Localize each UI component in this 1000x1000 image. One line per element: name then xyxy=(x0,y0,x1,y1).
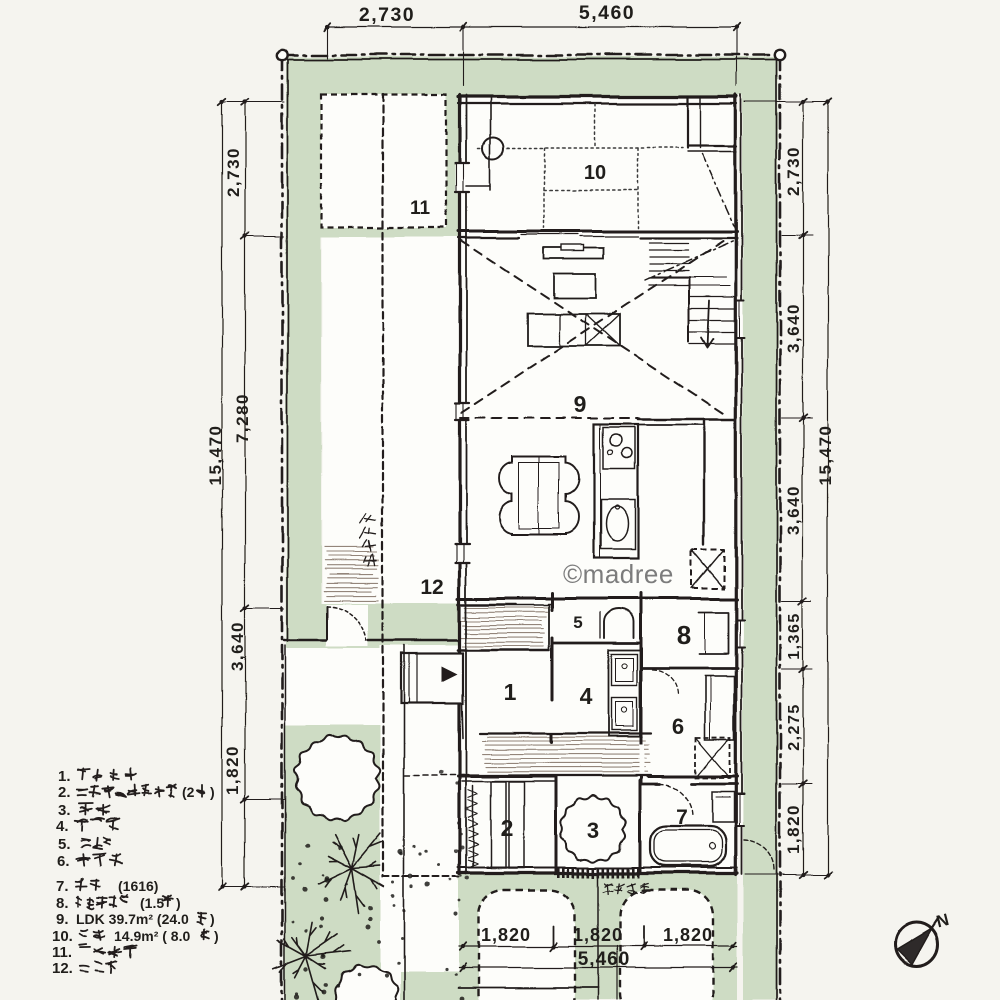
svg-text:8.: 8. xyxy=(56,895,69,912)
svg-text:6: 6 xyxy=(672,714,684,739)
svg-text:©madree: ©madree xyxy=(563,559,674,589)
svg-text:7,280: 7,280 xyxy=(233,393,252,443)
svg-text:15,470: 15,470 xyxy=(816,425,835,486)
svg-text:1,820: 1,820 xyxy=(223,745,242,795)
svg-text:1,820: 1,820 xyxy=(784,804,803,854)
svg-text:2,275: 2,275 xyxy=(786,703,803,751)
svg-text:4.: 4. xyxy=(56,818,69,835)
svg-text:10: 10 xyxy=(584,162,606,184)
svg-text:11.: 11. xyxy=(52,944,72,961)
svg-text:9.: 9. xyxy=(56,911,69,928)
svg-text:3,640: 3,640 xyxy=(784,303,803,353)
svg-text:): ) xyxy=(210,911,215,927)
svg-text:3,640: 3,640 xyxy=(784,485,803,535)
svg-text:2: 2 xyxy=(501,815,514,841)
svg-text:10.: 10. xyxy=(52,928,73,945)
svg-text:1,820: 1,820 xyxy=(573,925,623,945)
svg-text:11: 11 xyxy=(410,198,431,219)
svg-text:3.: 3. xyxy=(58,802,71,819)
svg-text:7: 7 xyxy=(676,806,688,829)
svg-text:): ) xyxy=(214,928,219,944)
svg-text:9: 9 xyxy=(574,391,587,417)
svg-text:5: 5 xyxy=(573,613,582,632)
svg-text:6.: 6. xyxy=(57,853,70,870)
svg-text:12: 12 xyxy=(420,576,443,599)
svg-text:4: 4 xyxy=(580,683,593,709)
svg-text:5,460: 5,460 xyxy=(579,2,635,24)
svg-text:2,730: 2,730 xyxy=(224,147,243,197)
svg-text:(2: (2 xyxy=(182,784,195,800)
svg-text:): ) xyxy=(210,784,215,800)
svg-text:1,365: 1,365 xyxy=(786,612,803,660)
svg-text:2,730: 2,730 xyxy=(359,4,415,26)
svg-text:15,470: 15,470 xyxy=(206,425,225,486)
svg-text:(1616): (1616) xyxy=(118,878,158,894)
svg-text:2,730: 2,730 xyxy=(784,146,803,196)
svg-text:1: 1 xyxy=(504,679,517,705)
svg-text:2.: 2. xyxy=(58,784,71,801)
svg-text:12.: 12. xyxy=(52,960,73,977)
svg-text:1,820: 1,820 xyxy=(481,925,531,945)
svg-text:7.: 7. xyxy=(56,878,69,895)
svg-text:8: 8 xyxy=(677,620,691,650)
svg-text:5,460: 5,460 xyxy=(578,949,631,970)
svg-text:1.: 1. xyxy=(58,768,71,785)
svg-text:1,820: 1,820 xyxy=(663,925,713,945)
svg-text:(1.5: (1.5 xyxy=(140,895,164,911)
svg-text:3: 3 xyxy=(587,818,599,843)
svg-text:LDK 39.7m² (24.0: LDK 39.7m² (24.0 xyxy=(76,911,189,927)
svg-text:): ) xyxy=(176,895,181,911)
svg-text:3,640: 3,640 xyxy=(228,621,247,671)
svg-text:5.: 5. xyxy=(58,836,71,853)
svg-text:14.9m² ( 8.0: 14.9m² ( 8.0 xyxy=(114,928,190,944)
